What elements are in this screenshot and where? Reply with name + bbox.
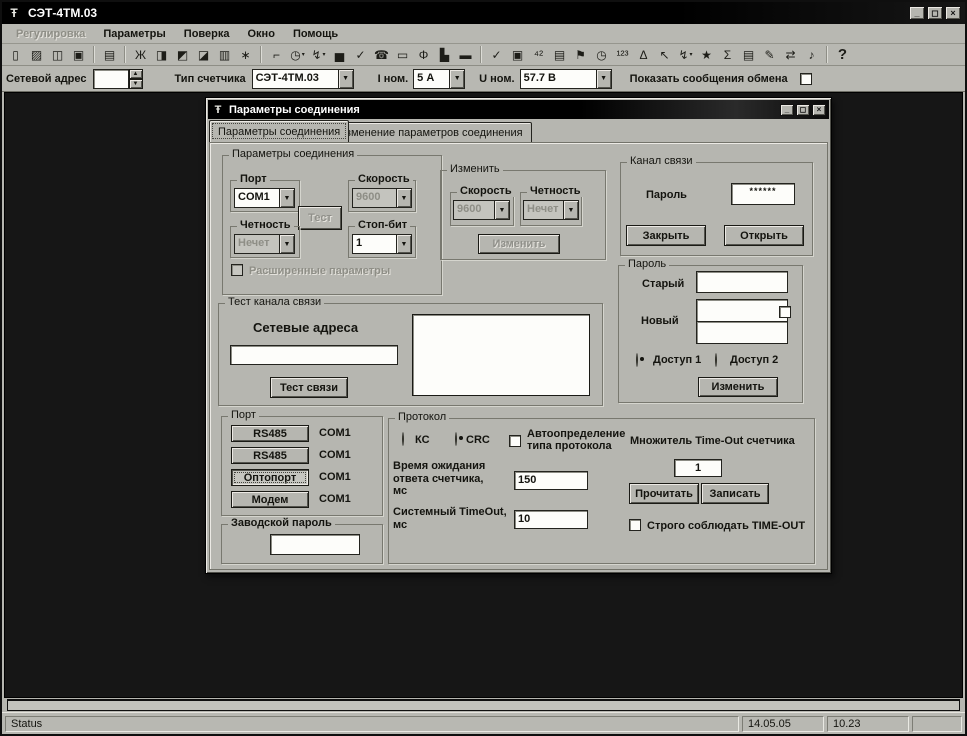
menu-pomosch[interactable]: Помощь bbox=[285, 26, 346, 42]
palette-icon[interactable]: ★ bbox=[696, 45, 717, 65]
protocol-title: Протокол bbox=[395, 411, 449, 423]
status-text: Status bbox=[5, 716, 739, 732]
close-button[interactable]: × bbox=[945, 6, 961, 20]
unom-value: 57.7 В bbox=[521, 70, 596, 88]
toolbar-separator bbox=[826, 46, 828, 63]
menu-parametry[interactable]: Параметры bbox=[95, 26, 173, 42]
tab-change-parameters[interactable]: Изменение параметров соединения bbox=[329, 122, 532, 142]
check-icon[interactable]: ✓ bbox=[486, 45, 507, 65]
close-channel-button[interactable]: Закрыть bbox=[626, 225, 706, 246]
minimize-button[interactable]: _ bbox=[909, 6, 925, 20]
dialog-icon: Ŧ bbox=[211, 103, 225, 116]
test-results-listbox[interactable] bbox=[412, 314, 590, 396]
toolbar-separator bbox=[93, 46, 95, 63]
scales-icon[interactable]: Ж bbox=[130, 45, 151, 65]
crc-radio[interactable] bbox=[455, 432, 457, 446]
wait-time-input[interactable]: 150 bbox=[514, 471, 588, 490]
new-document-icon[interactable]: ▯ bbox=[5, 45, 26, 65]
spin-up-icon[interactable]: ▲ bbox=[129, 69, 143, 79]
adjust-counter-icon[interactable]: ⁴² bbox=[528, 45, 549, 65]
ruler-corner-icon[interactable]: ⌐ bbox=[266, 45, 287, 65]
dialog-close-button[interactable]: × bbox=[812, 104, 826, 116]
net-address-input[interactable] bbox=[93, 69, 129, 89]
toolbar: ▯▨◫▣▤Ж◨◩◪▥∗⌐◷▾↯▾▅✓☎▭Φ▙▬✓▣⁴²▤⚑◷¹²³Δ↖↯▾★Σ▤… bbox=[2, 44, 965, 66]
sigma-icon[interactable]: Σ bbox=[717, 45, 738, 65]
toolbar-separator bbox=[124, 46, 126, 63]
system-timeout-label: Системный TimeOut, мс bbox=[393, 506, 509, 531]
spin-down-icon[interactable]: ▼ bbox=[129, 79, 143, 89]
help-icon[interactable]: ? bbox=[832, 45, 853, 65]
pen-icon[interactable]: ✎ bbox=[759, 45, 780, 65]
bar-chart-icon[interactable]: ▅ bbox=[329, 45, 350, 65]
show-password-checkbox[interactable] bbox=[779, 306, 791, 318]
window-icon[interactable]: ▭ bbox=[392, 45, 413, 65]
speed-value: 9600 bbox=[353, 189, 396, 207]
cursor-icon[interactable]: ↖ bbox=[654, 45, 675, 65]
app-icon: Ŧ bbox=[6, 6, 22, 20]
status-spare bbox=[912, 716, 962, 732]
toolbar-separator bbox=[480, 46, 482, 63]
stand-icon[interactable]: ◩ bbox=[172, 45, 193, 65]
optoport-com-label: COM1 bbox=[319, 471, 351, 483]
exchange-icon[interactable]: ⇄ bbox=[780, 45, 801, 65]
modem-button[interactable]: Модем bbox=[231, 491, 309, 508]
burst-icon[interactable]: ∗ bbox=[235, 45, 256, 65]
optoport-button[interactable]: Оптопорт bbox=[231, 469, 309, 486]
meter-type-select[interactable]: СЭТ-4ТМ.03 ▼ bbox=[252, 69, 354, 89]
dialog-title-bar: Ŧ Параметры соединения _ ◻ × bbox=[208, 100, 829, 119]
open-channel-button[interactable]: Открыть bbox=[724, 225, 804, 246]
terminal-icon[interactable]: ▤ bbox=[549, 45, 570, 65]
change-group-title: Изменить bbox=[447, 163, 503, 175]
lightning-menu-icon[interactable]: ↯▾ bbox=[675, 45, 696, 65]
connection-parameters-dialog: Ŧ Параметры соединения _ ◻ × Параметры с… bbox=[205, 97, 832, 574]
factory-password-title: Заводской пароль bbox=[228, 517, 335, 529]
extended-parameters-label: Расширенные параметры bbox=[249, 265, 390, 277]
new-password-input-1[interactable] bbox=[696, 299, 788, 322]
status-date: 14.05.05 bbox=[742, 716, 824, 732]
chevron-down-icon: ▼ bbox=[279, 235, 294, 253]
kc-radio[interactable] bbox=[402, 432, 404, 446]
printer-device-icon[interactable]: ▙ bbox=[434, 45, 455, 65]
menu-poverka[interactable]: Поверка bbox=[176, 26, 238, 42]
port-buttons-title: Порт bbox=[228, 409, 259, 421]
rs485-button-2[interactable]: RS485 bbox=[231, 447, 309, 464]
old-password-label: Старый bbox=[642, 278, 684, 290]
modem-com-label: COM1 bbox=[319, 493, 351, 505]
message-bar bbox=[7, 699, 960, 711]
access2-label: Доступ 2 bbox=[730, 354, 778, 366]
meter-type-label: Тип счетчика bbox=[175, 73, 246, 85]
tab-connection-parameters[interactable]: Параметры соединения bbox=[209, 120, 349, 142]
stopwatch-menu-icon[interactable]: ◷▾ bbox=[287, 45, 308, 65]
system-timeout-input[interactable]: 10 bbox=[514, 510, 588, 529]
channel-group-title: Канал связи bbox=[627, 155, 696, 167]
dialog-restore-button[interactable]: ◻ bbox=[796, 104, 810, 116]
inom-select[interactable]: 5 А ▼ bbox=[413, 69, 465, 89]
fax-icon[interactable]: ☎ bbox=[371, 45, 392, 65]
change-parity-select: Нечет ▼ bbox=[523, 200, 579, 220]
connection-settings-title: Параметры соединения bbox=[229, 148, 357, 160]
menu-bar: Регулировка Параметры Поверка Окно Помощ… bbox=[2, 24, 965, 44]
inom-value: 5 А bbox=[414, 70, 449, 88]
main-window: Ŧ СЭТ-4ТМ.03 _ ◻ × Регулировка Параметры… bbox=[0, 0, 967, 736]
meter-type-value: СЭТ-4ТМ.03 bbox=[253, 70, 338, 88]
change-speed-label: Скорость bbox=[457, 185, 515, 197]
show-messages-label: Показать сообщения обмена bbox=[630, 73, 788, 85]
dialog-title: Параметры соединения bbox=[229, 104, 360, 116]
access1-radio[interactable] bbox=[636, 353, 638, 367]
status-time: 10.23 bbox=[827, 716, 909, 732]
access2-radio[interactable] bbox=[715, 353, 717, 367]
status-bar: Status 14.05.05 10.23 bbox=[2, 712, 965, 734]
chevron-down-icon: ▼ bbox=[396, 189, 411, 207]
port-label: Порт bbox=[237, 173, 270, 185]
screen-icon[interactable]: ▣ bbox=[507, 45, 528, 65]
chevron-down-icon[interactable]: ▼ bbox=[449, 70, 464, 88]
change-parity-value: Нечет bbox=[524, 201, 563, 219]
open-file-icon[interactable]: ▨ bbox=[26, 45, 47, 65]
print-icon[interactable]: ▤ bbox=[99, 45, 120, 65]
chevron-down-icon[interactable]: ▼ bbox=[338, 70, 353, 88]
speed-select: 9600 ▼ bbox=[352, 188, 412, 208]
access1-label: Доступ 1 bbox=[653, 354, 701, 366]
chevron-down-icon[interactable]: ▾ bbox=[302, 51, 305, 58]
old-password-input[interactable] bbox=[696, 271, 788, 293]
rs485-button-1[interactable]: RS485 bbox=[231, 425, 309, 442]
parity-label: Четность bbox=[237, 219, 294, 231]
show-messages-checkbox[interactable] bbox=[800, 73, 812, 85]
timer-icon[interactable]: ◷ bbox=[591, 45, 612, 65]
auto-protocol-label: Автоопределение типа протокола bbox=[527, 429, 625, 452]
channel-password-label: Пароль bbox=[646, 189, 687, 201]
extended-parameters-checkbox bbox=[231, 264, 243, 276]
new-password-label: Новый bbox=[641, 315, 679, 327]
parity-value: Нечет bbox=[235, 235, 279, 253]
port-select[interactable]: COM1 ▼ bbox=[234, 188, 295, 208]
chevron-down-icon[interactable]: ▼ bbox=[396, 235, 411, 253]
change-password-button[interactable]: Изменить bbox=[698, 377, 778, 397]
chevron-down-icon: ▼ bbox=[494, 201, 509, 219]
kc-label: КС bbox=[415, 434, 430, 446]
strict-timeout-label: Строго соблюдать TIME-OUT bbox=[647, 520, 805, 532]
test-link-button[interactable]: Тест связи bbox=[270, 377, 348, 398]
inom-label: I ном. bbox=[378, 73, 409, 85]
unom-label: U ном. bbox=[479, 73, 514, 85]
probe-menu-icon[interactable]: ↯▾ bbox=[308, 45, 329, 65]
factory-password-input[interactable] bbox=[270, 534, 360, 555]
stopbit-label: Стоп-бит bbox=[355, 219, 410, 231]
network-addresses-input[interactable] bbox=[230, 345, 398, 365]
channel-password-input[interactable]: ****** bbox=[731, 183, 795, 205]
rs485-2-com-label: COM1 bbox=[319, 449, 351, 461]
window-title: СЭТ-4ТМ.03 bbox=[28, 6, 97, 20]
network-addresses-label: Сетевые адреса bbox=[253, 320, 358, 335]
net-address-label: Сетевой адрес bbox=[6, 73, 87, 85]
change-speed-select: 9600 ▼ bbox=[453, 200, 510, 220]
restore-button[interactable]: ◻ bbox=[927, 6, 943, 20]
stopbit-value: 1 bbox=[353, 235, 396, 253]
menu-okno[interactable]: Окно bbox=[240, 26, 283, 42]
wait-time-label: Время ожидания ответа счетчика, мс bbox=[393, 460, 495, 498]
timeout-multiplier-input[interactable]: 1 bbox=[674, 459, 722, 477]
stopbit-select[interactable]: 1 ▼ bbox=[352, 234, 412, 254]
save-report-icon[interactable]: ▣ bbox=[68, 45, 89, 65]
parity-select: Нечет ▼ bbox=[234, 234, 295, 254]
net-address-stepper[interactable]: ▲ ▼ bbox=[129, 69, 143, 89]
meter-group-icon[interactable]: ◪ bbox=[193, 45, 214, 65]
rs485-1-com-label: COM1 bbox=[319, 427, 351, 439]
write-button[interactable]: Записать bbox=[701, 483, 769, 504]
delta-icon[interactable]: Δ bbox=[633, 45, 654, 65]
change-speed-value: 9600 bbox=[454, 201, 494, 219]
auto-protocol-checkbox[interactable] bbox=[509, 435, 521, 447]
display-icon[interactable]: ▬ bbox=[455, 45, 476, 65]
digits-123-icon[interactable]: ¹²³ bbox=[612, 45, 633, 65]
crc-label: CRC bbox=[466, 434, 490, 446]
test-button: Тест bbox=[298, 206, 342, 230]
toolbar-separator bbox=[260, 46, 262, 63]
note-icon[interactable]: ♪ bbox=[801, 45, 822, 65]
chevron-down-icon[interactable]: ▼ bbox=[596, 70, 611, 88]
new-password-input-2[interactable] bbox=[696, 321, 788, 344]
strict-timeout-checkbox[interactable] bbox=[629, 519, 641, 531]
chevron-down-icon[interactable]: ▾ bbox=[323, 51, 326, 58]
device-icon[interactable]: ▥ bbox=[214, 45, 235, 65]
meter-carriage-icon[interactable]: ◨ bbox=[151, 45, 172, 65]
change-apply-button: Изменить bbox=[478, 234, 560, 254]
read-button[interactable]: Прочитать bbox=[629, 483, 699, 504]
address-bar: Сетевой адрес ▲ ▼ Тип счетчика СЭТ-4ТМ.0… bbox=[2, 66, 965, 92]
chart-check-icon[interactable]: ✓ bbox=[350, 45, 371, 65]
journal-icon[interactable]: ▤ bbox=[738, 45, 759, 65]
map-flag-icon[interactable]: ⚑ bbox=[570, 45, 591, 65]
info-icon[interactable]: Φ bbox=[413, 45, 434, 65]
speed-label: Скорость bbox=[355, 173, 413, 185]
title-bar: Ŧ СЭТ-4ТМ.03 _ ◻ × bbox=[2, 2, 965, 24]
port-value: COM1 bbox=[235, 189, 279, 207]
password-group-title: Пароль bbox=[625, 258, 669, 270]
chevron-down-icon: ▼ bbox=[563, 201, 578, 219]
chevron-down-icon[interactable]: ▾ bbox=[690, 51, 693, 58]
channel-test-title: Тест канала связи bbox=[225, 296, 324, 308]
unom-select[interactable]: 57.7 В ▼ bbox=[520, 69, 612, 89]
save-icon[interactable]: ◫ bbox=[47, 45, 68, 65]
change-parity-label: Четность bbox=[527, 185, 584, 197]
timeout-multiplier-label: Множитель Time-Out счетчика bbox=[630, 435, 795, 447]
dialog-minimize-button[interactable]: _ bbox=[780, 104, 794, 116]
menu-regulirovka: Регулировка bbox=[8, 26, 93, 42]
chevron-down-icon[interactable]: ▼ bbox=[279, 189, 294, 207]
